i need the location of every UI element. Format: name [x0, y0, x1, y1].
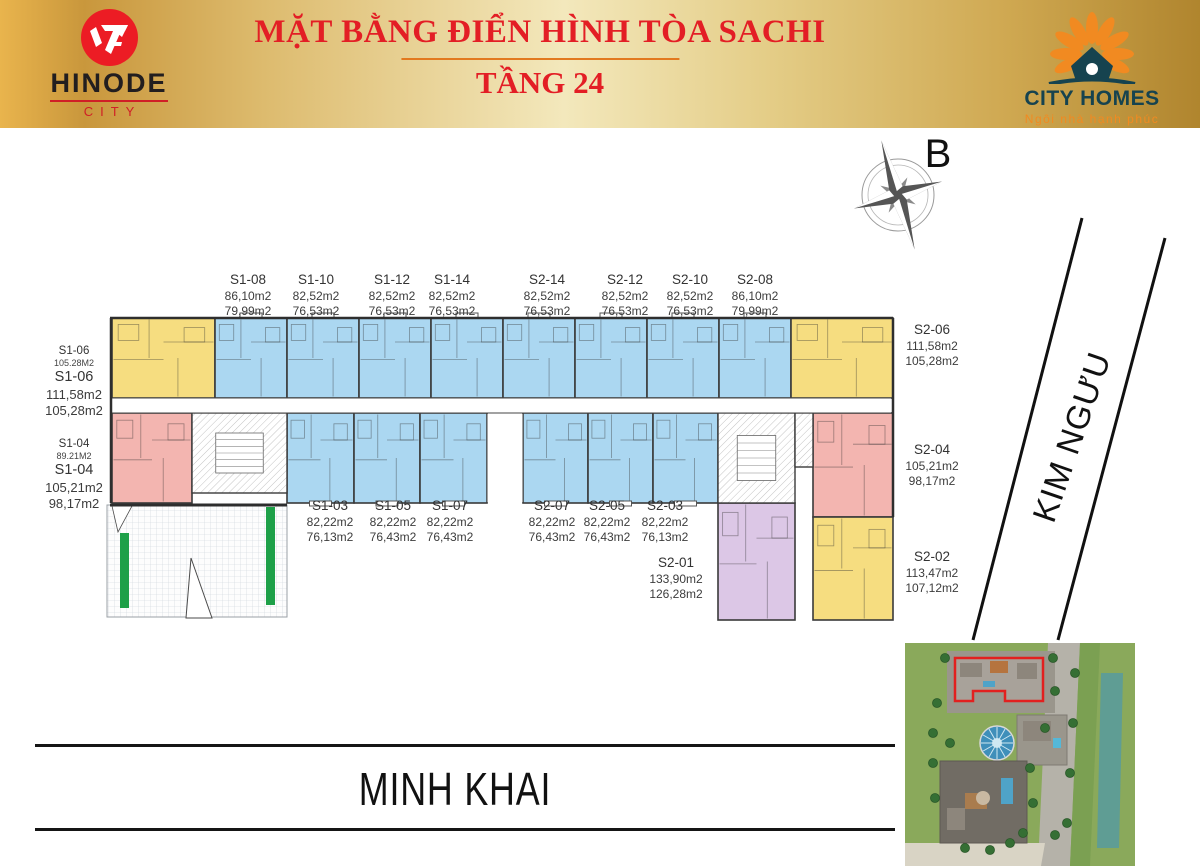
unit-S1-14	[431, 318, 503, 398]
unit-label-line: S1-04	[45, 437, 103, 451]
unit-label-line: 98,17m2	[45, 496, 103, 512]
unit-S1-04	[112, 413, 192, 503]
unit-label-line: S1-12	[369, 272, 416, 289]
unit-label-line: 76,53m2	[369, 304, 416, 319]
compass-north-label: B	[925, 132, 952, 177]
unit-label-s2-02: S2-02113,47m2107,12m2	[905, 549, 958, 595]
unit-label-line: 86,10m2	[225, 289, 272, 304]
unit-label-line: S2-08	[732, 272, 779, 289]
green-bar	[120, 533, 129, 608]
unit-label-line: S1-04	[45, 462, 103, 480]
green-bar	[266, 507, 275, 605]
unit-label-s2-04: S2-04105,21m298,17m2	[905, 442, 958, 488]
unit-label-line: 76,43m2	[370, 530, 417, 545]
unit-label-line: 107,12m2	[905, 581, 958, 596]
unit-label-line: 111,58m2	[905, 339, 958, 354]
unit-S2-05	[588, 413, 653, 503]
unit-label-line: S2-10	[667, 272, 714, 289]
unit-label-s2-07: S2-0782,22m276,43m2	[529, 498, 576, 544]
unit-label-line: 113,47m2	[905, 566, 958, 581]
unit-label-line: 105,28m2	[45, 403, 103, 419]
unit-label-line: 105.28M2	[45, 358, 103, 369]
unit-label-line: S1-07	[427, 498, 474, 515]
unit-label-s1-12: S1-1282,52m276,53m2	[369, 272, 416, 318]
unit-label-line: 76,43m2	[584, 530, 631, 545]
unit-label-line: 76,53m2	[602, 304, 649, 319]
floor-plan	[0, 0, 1200, 866]
unit-label-s2-14: S2-1482,52m276,53m2	[524, 272, 571, 318]
unit-label-line: S1-03	[307, 498, 354, 515]
unit-S1-06	[112, 318, 215, 398]
unit-label-line: 82,52m2	[667, 289, 714, 304]
unit-label-line: S2-07	[529, 498, 576, 515]
unit-label-line: 76,43m2	[427, 530, 474, 545]
unit-label-line: 76,43m2	[529, 530, 576, 545]
unit-S1-03	[287, 413, 354, 503]
unit-label-line: 82,52m2	[369, 289, 416, 304]
unit-label-line: 79,99m2	[732, 304, 779, 319]
page: HINODE CITY MẶT BẰNG ĐIỂN HÌNH TÒA SACHI…	[0, 0, 1200, 866]
unit-S2-14	[503, 318, 575, 398]
unit-label-s1-08: S1-0886,10m279,99m2	[225, 272, 272, 318]
unit-label-line: 82,52m2	[429, 289, 476, 304]
unit-label-s2-05: S2-0582,22m276,43m2	[584, 498, 631, 544]
unit-label-line: S1-06	[45, 369, 103, 387]
unit-label-line: 111,58m2	[45, 387, 103, 403]
unit-label-line: S2-06	[905, 322, 958, 339]
unit-S1-05	[354, 413, 420, 503]
unit-label-line: 126,28m2	[649, 587, 702, 602]
unit-S2-03	[653, 413, 718, 503]
unit-label-line: 82,22m2	[370, 515, 417, 530]
unit-label-s2-03: S2-0382,22m276,13m2	[642, 498, 689, 544]
unit-label-line: 82,22m2	[642, 515, 689, 530]
unit-label-s1-06: S1-06105.28M2S1-06111,58m2105,28m2	[45, 344, 103, 420]
unit-S2-10	[647, 318, 719, 398]
unit-label-line: 82,22m2	[427, 515, 474, 530]
unit-label-line: S1-14	[429, 272, 476, 289]
unit-label-line: 105,21m2	[905, 459, 958, 474]
unit-label-s1-14: S1-1482,52m276,53m2	[429, 272, 476, 318]
unit-label-line: S1-08	[225, 272, 272, 289]
unit-label-line: 76,53m2	[429, 304, 476, 319]
unit-label-line: S2-03	[642, 498, 689, 515]
unit-label-line: S1-10	[293, 272, 340, 289]
street-minh-khai-label: MINH KHAI	[359, 762, 551, 816]
unit-label-line: 76,53m2	[293, 304, 340, 319]
unit-label-s2-10: S2-1082,52m276,53m2	[667, 272, 714, 318]
unit-label-line: 82,52m2	[524, 289, 571, 304]
unit-label-line: 89.21M2	[45, 451, 103, 462]
unit-label-line: 76,53m2	[667, 304, 714, 319]
podium-terrace	[107, 505, 287, 618]
unit-S1-07	[420, 413, 487, 503]
unit-label-s1-10: S1-1082,52m276,53m2	[293, 272, 340, 318]
unit-S1-10	[287, 318, 359, 398]
unit-label-s1-04: S1-0489.21M2S1-04105,21m298,17m2	[45, 437, 103, 513]
unit-label-line: 76,13m2	[307, 530, 354, 545]
unit-label-s2-12: S2-1282,52m276,53m2	[602, 272, 649, 318]
unit-S2-02	[813, 517, 893, 620]
unit-S2-06	[791, 318, 893, 398]
unit-label-line: 76,53m2	[524, 304, 571, 319]
unit-label-line: S1-06	[45, 344, 103, 358]
unit-label-s1-07: S1-0782,22m276,43m2	[427, 498, 474, 544]
unit-label-line: 82,52m2	[293, 289, 340, 304]
unit-label-line: 105,28m2	[905, 354, 958, 369]
unit-label-line: S2-05	[584, 498, 631, 515]
site-plan-map	[905, 643, 1135, 866]
unit-S2-01	[718, 503, 795, 620]
unit-label-s2-01: S2-01133,90m2126,28m2	[649, 555, 702, 601]
unit-label-line: 82,22m2	[307, 515, 354, 530]
unit-S2-07	[523, 413, 588, 503]
unit-label-s1-03: S1-0382,22m276,13m2	[307, 498, 354, 544]
unit-label-line: 82,52m2	[602, 289, 649, 304]
unit-label-line: 82,22m2	[529, 515, 576, 530]
unit-S2-04	[813, 413, 893, 517]
unit-label-s2-08: S2-0886,10m279,99m2	[732, 272, 779, 318]
unit-label-line: S2-02	[905, 549, 958, 566]
unit-label-line: S2-04	[905, 442, 958, 459]
unit-label-line: S2-01	[649, 555, 702, 572]
unit-label-s1-05: S1-0582,22m276,43m2	[370, 498, 417, 544]
unit-label-line: 76,13m2	[642, 530, 689, 545]
unit-label-line: S2-12	[602, 272, 649, 289]
minh-khai-road-line-bottom	[35, 828, 895, 831]
unit-label-s2-06: S2-06111,58m2105,28m2	[905, 322, 958, 368]
unit-label-line: S2-14	[524, 272, 571, 289]
unit-S1-08	[215, 318, 287, 398]
unit-label-line: 79,99m2	[225, 304, 272, 319]
unit-label-line: 86,10m2	[732, 289, 779, 304]
unit-S2-08	[719, 318, 791, 398]
unit-label-line: 98,17m2	[905, 474, 958, 489]
unit-S1-12	[359, 318, 431, 398]
unit-label-line: 82,22m2	[584, 515, 631, 530]
unit-label-line: 105,21m2	[45, 480, 103, 496]
unit-label-line: 133,90m2	[649, 572, 702, 587]
minh-khai-road-line-top	[35, 744, 895, 747]
unit-S2-12	[575, 318, 647, 398]
unit-label-line: S1-05	[370, 498, 417, 515]
